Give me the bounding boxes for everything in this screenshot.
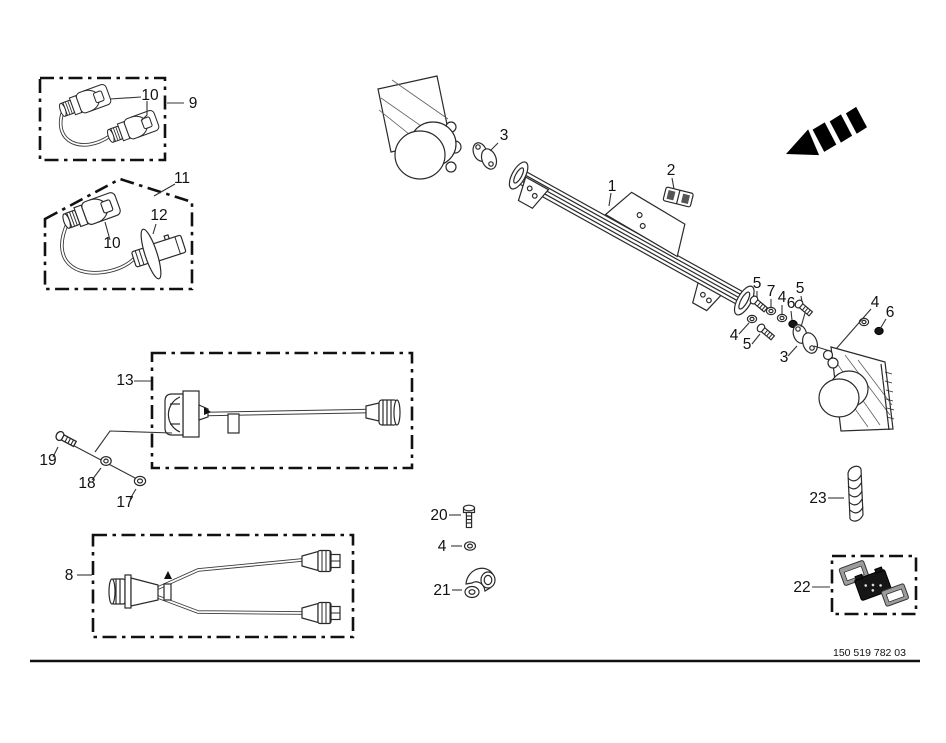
drawing-number: 150 519 782 03 [833,647,906,659]
connector-block-2 [663,187,694,207]
lamp-lens [395,131,445,179]
washer-4 [465,542,476,550]
callout-12: 12 [150,207,167,224]
callout-1: 1 [608,178,617,195]
callout-13: 13 [116,372,133,389]
washer-4 [777,314,786,321]
callout-4: 4 [871,294,880,311]
group-box-11: 11 12 10 [45,170,192,289]
callout-21: 21 [433,582,450,599]
washer-4 [859,318,868,325]
callout-10: 10 [103,235,121,252]
lamp-grommet [828,358,838,368]
group-box-8: 8 [65,535,353,637]
lamp-housing-rear [819,347,894,431]
parts-diagram: 10 9 11 12 10 [0,0,946,743]
screw-5 [794,299,814,317]
screw-5 [756,323,776,341]
callout-6: 6 [886,304,895,321]
callout-5: 5 [796,280,805,297]
clamp-3-right [791,323,820,355]
plug-connector [57,83,112,120]
callout-9: 9 [189,95,198,112]
lamp-lens [819,379,859,417]
callout-8: 8 [65,567,74,584]
screw-20 [464,505,475,527]
beam-bracket-right [688,283,720,313]
callout-4: 4 [730,327,739,344]
plug-connector [60,191,122,233]
small-parts-middle: 20 4 21 [430,505,495,599]
screw-5 [749,295,769,313]
callout-17: 17 [116,494,133,511]
callout-4: 4 [438,538,447,555]
washer-17 [134,476,145,485]
nut-6 [875,327,883,334]
washer-4 [747,315,756,322]
lamp-housing-front [378,76,461,179]
callout-23: 23 [809,490,826,507]
harness-plug [109,575,158,608]
footer: 150 519 782 03 [30,647,920,661]
bolt-19 [55,430,78,448]
callout-22: 22 [793,579,810,596]
callout-4: 4 [778,289,787,306]
marker-arrow-icon [164,571,172,579]
harness-connector [302,603,340,624]
catalog-page: 10 9 11 12 10 [0,0,946,743]
callout-6: 6 [787,295,796,312]
beam-assembly [500,137,770,327]
callout-11: 11 [174,170,190,187]
callout-19: 19 [39,452,56,469]
callout-3: 3 [500,127,509,144]
callout-5: 5 [743,336,752,353]
callout-3: 3 [780,349,789,366]
group-box-22: 22 [793,556,916,614]
plug-connector [105,109,160,146]
callout-5: 5 [753,275,762,292]
callout-2: 2 [667,162,676,179]
direction-arrow-icon [780,106,870,167]
dashed-box-11 [45,179,192,289]
fastener-cluster-right: 5 7 4 6 5 4 5 3 4 6 [730,275,895,366]
callout-7: 7 [767,283,776,300]
cable-housing [165,391,211,437]
harness-connector [302,551,340,572]
cable-plug-end [366,400,400,425]
cable-clamp-21 [465,568,495,597]
group-box-9: 10 9 [40,78,197,160]
callout-20: 20 [430,507,448,524]
spiral-wrap-23: 23 [809,466,863,521]
cable-tab [228,414,239,433]
callout-10: 10 [141,87,159,104]
nut-18 [101,457,111,466]
group-box-13: 13 [116,353,412,468]
lamp-grommet [446,162,456,172]
washer-7 [766,307,775,314]
adapter-plug-12 [126,219,192,285]
harness-clip [164,584,171,600]
callout-18: 18 [78,475,95,492]
